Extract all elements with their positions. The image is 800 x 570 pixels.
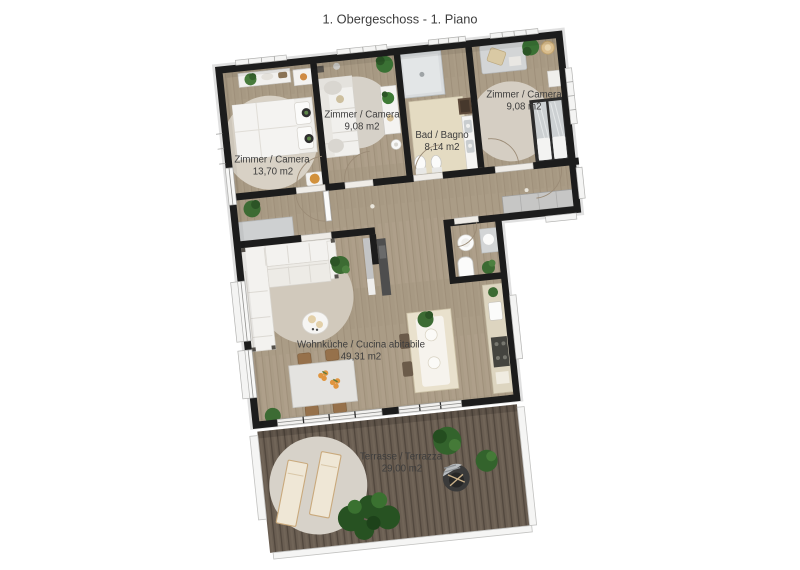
svg-text:Bad / Bagno: Bad / Bagno	[415, 130, 468, 141]
svg-text:13,70 m2: 13,70 m2	[253, 167, 293, 178]
svg-text:1. Obergeschoss - 1. Piano: 1. Obergeschoss - 1. Piano	[322, 12, 477, 27]
svg-text:Zimmer / Camera: Zimmer / Camera	[324, 110, 400, 121]
svg-text:Wohnküche / Cucina abitabile: Wohnküche / Cucina abitabile	[297, 340, 425, 351]
svg-text:9,08 m2: 9,08 m2	[506, 102, 541, 113]
svg-text:29,00 m2: 29,00 m2	[382, 464, 422, 475]
svg-text:Terrasse / Terrazza: Terrasse / Terrazza	[360, 452, 443, 463]
svg-text:49,31 m2: 49,31 m2	[341, 352, 381, 363]
svg-text:Zimmer / Camera: Zimmer / Camera	[234, 155, 310, 166]
svg-text:9,08 m2: 9,08 m2	[344, 122, 379, 133]
svg-text:Zimmer / Camera: Zimmer / Camera	[486, 90, 562, 101]
svg-text:8,14 m2: 8,14 m2	[424, 142, 459, 153]
